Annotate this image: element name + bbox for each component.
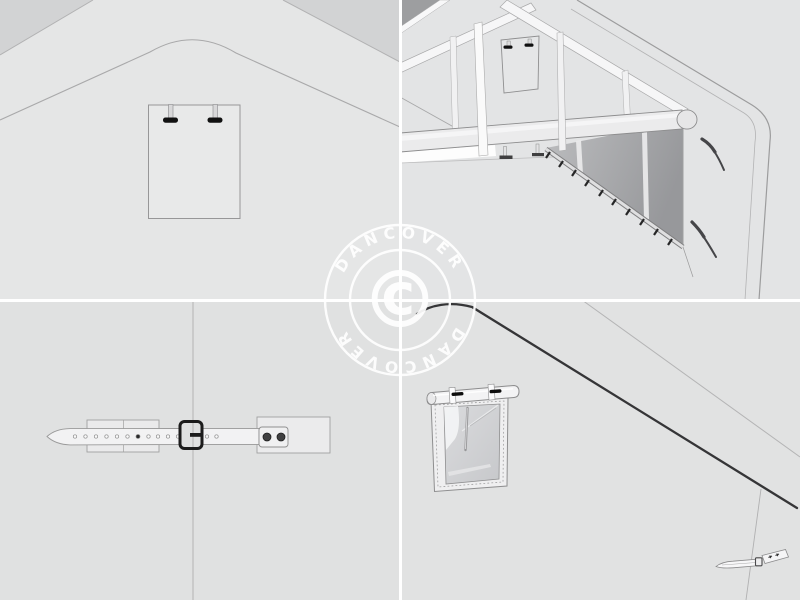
buckle-prong xyxy=(190,433,204,437)
fastening-plate xyxy=(149,105,241,219)
grid-divider-horizontal xyxy=(0,299,800,302)
selected-hole xyxy=(136,435,140,439)
panel-strap-buckle xyxy=(0,300,400,600)
strap xyxy=(47,429,259,445)
toggle-pin-icon xyxy=(525,44,534,47)
small-buckle-icon xyxy=(756,558,763,566)
panel-interior-corner xyxy=(400,0,800,300)
anchor-plate xyxy=(259,427,288,447)
panel-window-flap xyxy=(400,300,800,600)
panel-gable-plate-exterior xyxy=(0,0,400,300)
product-image-collage: DANCOVER DANCOVER © xyxy=(0,0,800,600)
rivet-icon xyxy=(277,433,285,441)
pole-end-cap xyxy=(677,110,697,129)
rivet-icon xyxy=(263,433,271,441)
fastening-plate-small xyxy=(501,36,539,93)
tarp-background xyxy=(0,300,400,600)
toggle-pin-icon xyxy=(504,46,513,49)
window-flap xyxy=(427,384,519,491)
